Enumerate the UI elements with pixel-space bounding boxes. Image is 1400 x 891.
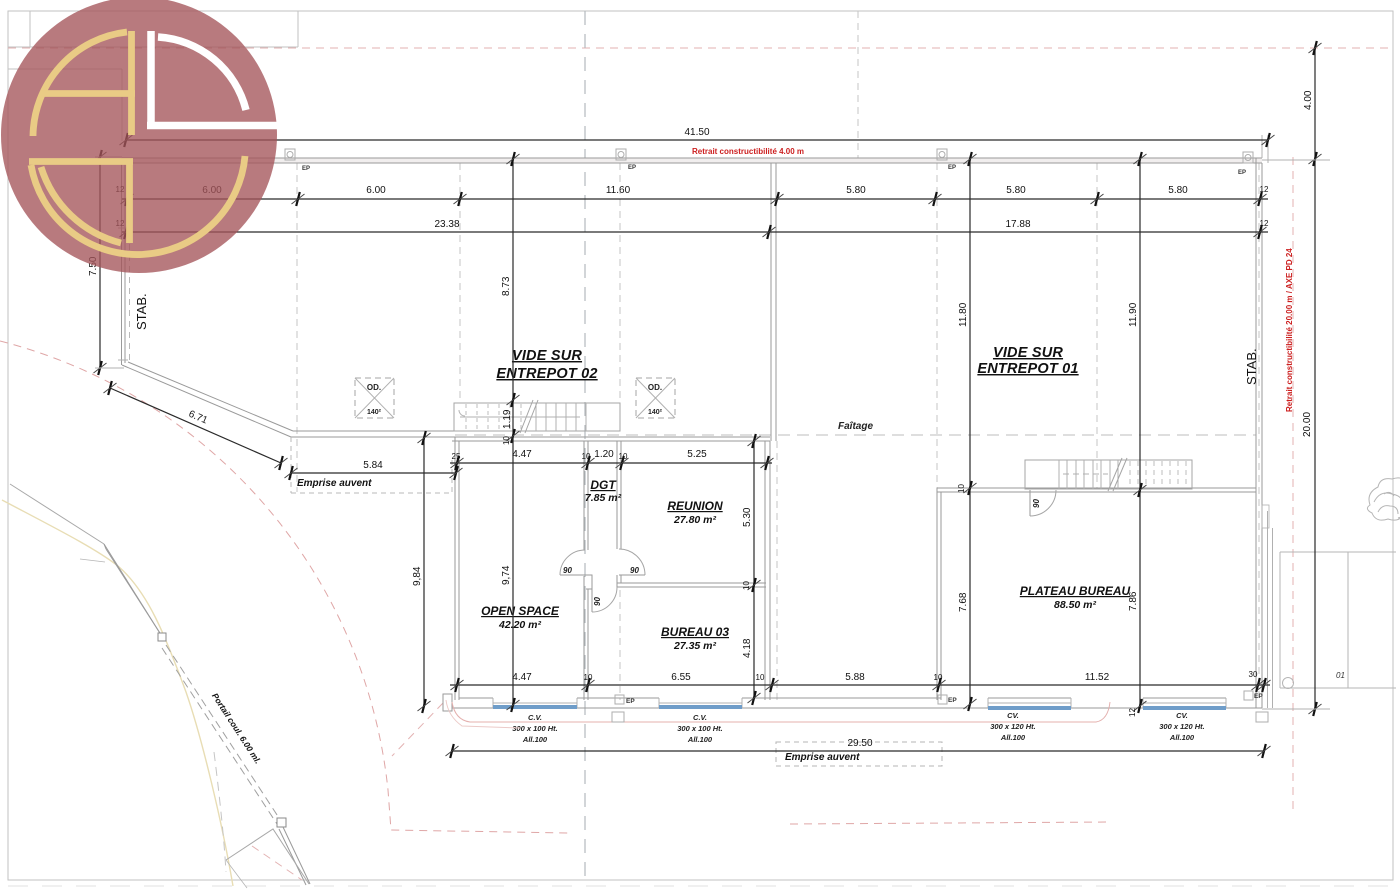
svg-text:90: 90 xyxy=(593,597,602,606)
svg-text:ENTREPOT 01: ENTREPOT 01 xyxy=(977,361,1078,377)
svg-text:5.80: 5.80 xyxy=(1168,185,1188,196)
svg-text:EP: EP xyxy=(948,697,957,704)
svg-text:EP: EP xyxy=(628,165,636,171)
svg-text:4.47: 4.47 xyxy=(512,449,532,460)
svg-text:10: 10 xyxy=(502,436,511,445)
svg-text:7.86: 7.86 xyxy=(1128,591,1139,611)
svg-text:ENTREPOT 02: ENTREPOT 02 xyxy=(496,366,597,382)
svg-text:EP: EP xyxy=(1238,170,1246,176)
svg-text:11.60: 11.60 xyxy=(606,185,631,196)
svg-text:4.47: 4.47 xyxy=(512,672,532,683)
svg-text:5.84: 5.84 xyxy=(363,460,383,471)
svg-text:Emprise auvent: Emprise auvent xyxy=(785,752,860,763)
svg-text:12: 12 xyxy=(1260,185,1269,194)
svg-text:All.100: All.100 xyxy=(687,735,713,744)
svg-text:12: 12 xyxy=(1128,708,1137,717)
svg-text:12: 12 xyxy=(1260,219,1269,228)
svg-text:8.73: 8.73 xyxy=(501,276,512,296)
svg-text:20.00: 20.00 xyxy=(1302,412,1313,437)
svg-text:DGT: DGT xyxy=(590,478,617,492)
svg-text:1.19: 1.19 xyxy=(502,409,513,429)
svg-text:5.88: 5.88 xyxy=(845,672,865,683)
svg-text:300 x 120 Ht.: 300 x 120 Ht. xyxy=(1159,722,1204,731)
svg-text:140²: 140² xyxy=(367,409,382,416)
svg-text:OD.: OD. xyxy=(367,383,381,392)
svg-text:Emprise auvent: Emprise auvent xyxy=(297,478,372,489)
svg-text:300 x 100 Ht.: 300 x 100 Ht. xyxy=(677,724,722,733)
svg-text:300 x 120 Ht.: 300 x 120 Ht. xyxy=(990,722,1035,731)
svg-text:OD.: OD. xyxy=(648,383,662,392)
svg-text:C.V.: C.V. xyxy=(693,713,707,722)
svg-text:41.50: 41.50 xyxy=(684,127,709,138)
svg-text:10: 10 xyxy=(584,673,593,682)
svg-text:C.V.: C.V. xyxy=(528,713,542,722)
svg-text:1.20: 1.20 xyxy=(594,449,614,460)
svg-text:10: 10 xyxy=(619,452,628,461)
svg-text:01: 01 xyxy=(1336,671,1345,680)
svg-text:VIDE SUR: VIDE SUR xyxy=(512,348,582,364)
svg-text:10: 10 xyxy=(934,673,943,682)
svg-text:27.35 m²: 27.35 m² xyxy=(673,640,717,652)
svg-text:5.30: 5.30 xyxy=(742,507,753,527)
svg-text:EP: EP xyxy=(626,698,635,705)
svg-text:9,84: 9,84 xyxy=(412,566,423,586)
svg-text:All.100: All.100 xyxy=(1000,733,1026,742)
svg-text:11.90: 11.90 xyxy=(1128,302,1139,327)
svg-text:EP: EP xyxy=(302,166,310,172)
svg-text:REUNION: REUNION xyxy=(667,499,723,513)
svg-text:25: 25 xyxy=(452,452,461,461)
svg-text:10: 10 xyxy=(756,673,765,682)
svg-text:30: 30 xyxy=(1249,670,1258,679)
svg-text:PLATEAU BUREAU: PLATEAU BUREAU xyxy=(1020,584,1131,598)
svg-text:CV.: CV. xyxy=(1007,711,1019,720)
svg-text:EP: EP xyxy=(948,165,956,171)
svg-text:EP: EP xyxy=(1254,693,1263,700)
svg-text:4.18: 4.18 xyxy=(742,638,753,658)
svg-text:Retrait constructibilité 4.00: Retrait constructibilité 4.00 m xyxy=(692,147,804,156)
svg-text:29.50: 29.50 xyxy=(847,738,872,749)
svg-text:90: 90 xyxy=(630,566,639,575)
svg-text:CV.: CV. xyxy=(1176,711,1188,720)
svg-text:10: 10 xyxy=(957,484,966,493)
svg-text:10: 10 xyxy=(742,581,751,590)
svg-text:BUREAU 03: BUREAU 03 xyxy=(661,625,729,639)
svg-text:5.80: 5.80 xyxy=(846,185,866,196)
svg-text:27.80 m²: 27.80 m² xyxy=(673,514,717,526)
svg-text:5.80: 5.80 xyxy=(1006,185,1026,196)
svg-text:17.88: 17.88 xyxy=(1005,219,1030,230)
svg-text:Faîtage: Faîtage xyxy=(838,421,873,432)
svg-text:5.25: 5.25 xyxy=(687,449,707,460)
svg-text:7.68: 7.68 xyxy=(958,592,969,612)
svg-text:11.80: 11.80 xyxy=(958,302,969,327)
svg-text:140²: 140² xyxy=(648,409,663,416)
svg-text:42.20 m²: 42.20 m² xyxy=(498,619,542,631)
svg-text:OPEN SPACE: OPEN SPACE xyxy=(481,604,560,618)
svg-text:300 x 100 Ht.: 300 x 100 Ht. xyxy=(512,724,557,733)
svg-text:4.00: 4.00 xyxy=(1303,90,1314,110)
svg-text:VIDE SUR: VIDE SUR xyxy=(993,345,1063,361)
svg-text:90: 90 xyxy=(563,566,572,575)
svg-text:23.38: 23.38 xyxy=(434,219,459,230)
svg-text:Retrait constructibilité 20.00: Retrait constructibilité 20.00 m / AXE P… xyxy=(1285,248,1294,412)
svg-text:All.100: All.100 xyxy=(1169,733,1195,742)
svg-text:11.52: 11.52 xyxy=(1085,672,1110,683)
svg-text:88.50 m²: 88.50 m² xyxy=(1054,599,1097,611)
svg-text:6.55: 6.55 xyxy=(671,672,691,683)
svg-text:9,74: 9,74 xyxy=(501,565,512,585)
svg-text:10: 10 xyxy=(582,452,591,461)
svg-text:All.100: All.100 xyxy=(522,735,548,744)
svg-text:90: 90 xyxy=(1032,499,1041,508)
svg-text:7.85 m²: 7.85 m² xyxy=(585,492,622,504)
svg-text:STAB.: STAB. xyxy=(1244,348,1259,385)
svg-text:6.00: 6.00 xyxy=(366,185,386,196)
svg-text:STAB.: STAB. xyxy=(134,293,149,330)
